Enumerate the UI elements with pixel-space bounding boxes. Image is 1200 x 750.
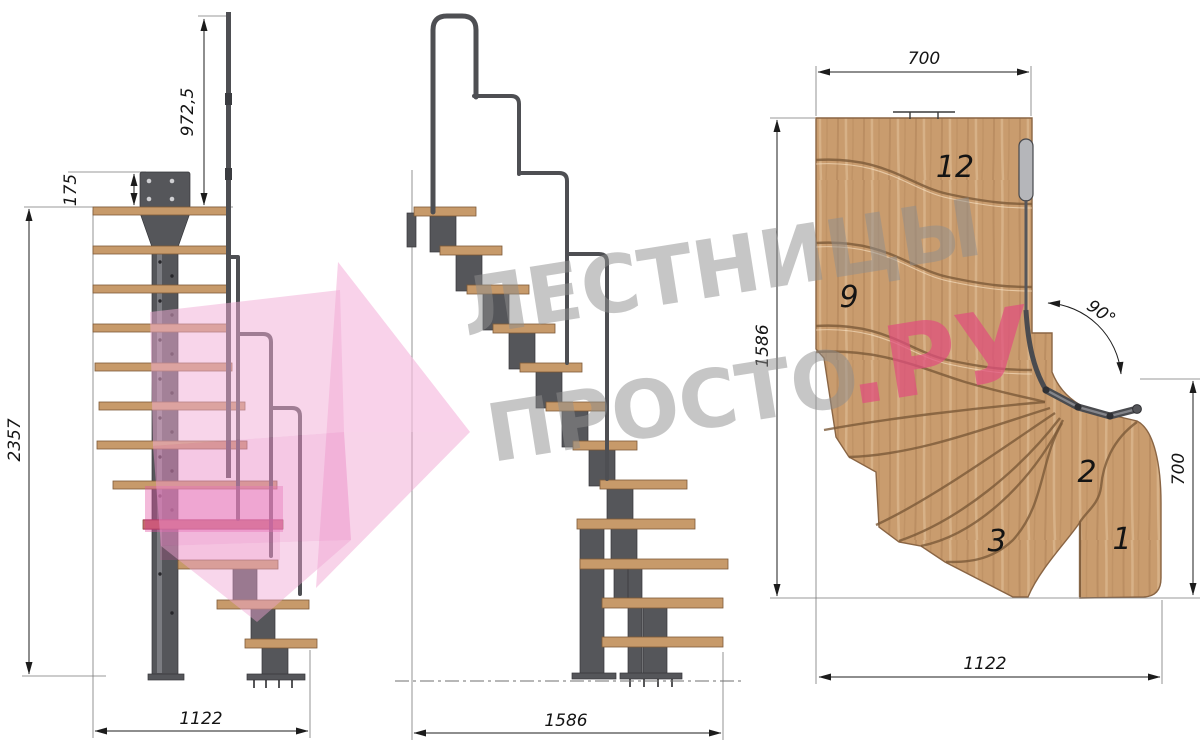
- wall-bracket: [407, 213, 416, 247]
- dim-label: 2357: [5, 418, 25, 461]
- dim-label: 700: [1169, 453, 1189, 485]
- step-tread: [93, 285, 228, 293]
- step-number: 12: [936, 150, 974, 185]
- dim-label: 1122: [963, 654, 1006, 674]
- base-plate: [572, 673, 616, 679]
- step-number: 3: [987, 524, 1006, 559]
- stringer-module: [611, 528, 637, 564]
- step-tread: [440, 246, 502, 255]
- step-number: 1: [1112, 522, 1131, 557]
- base-plate: [148, 674, 184, 680]
- arrow-tail-facet: [153, 432, 351, 546]
- dim-label: 700: [908, 49, 940, 69]
- rail-joint: [1042, 386, 1049, 393]
- step-tread: [414, 207, 476, 216]
- step-number: 2: [1077, 455, 1096, 490]
- step-tread: [577, 519, 695, 529]
- rail-joint: [1106, 412, 1113, 419]
- rail-end-cap: [1133, 405, 1142, 414]
- post-sleeve: [225, 168, 232, 180]
- dim-label: 1586: [544, 711, 587, 731]
- support-post: [628, 566, 642, 676]
- step-tread: [520, 363, 582, 372]
- wall-mount-plate: [140, 172, 190, 208]
- dim-label: 175: [61, 174, 81, 206]
- step-tread: [602, 637, 723, 647]
- support-column: [580, 528, 604, 675]
- step-tread: [93, 207, 228, 215]
- support-column: [262, 648, 288, 675]
- step-tread: [580, 559, 728, 569]
- handrail-loop-top: [1019, 139, 1033, 201]
- base-plate: [247, 674, 305, 680]
- step-tread: [93, 246, 228, 254]
- step-tread: [602, 598, 723, 608]
- rail-joint: [1074, 403, 1081, 410]
- base-plate: [620, 673, 682, 679]
- arrow-tail: [150, 290, 344, 446]
- post-sleeve: [225, 93, 232, 105]
- dim-label: 972,5: [178, 88, 198, 137]
- step-tread: [245, 639, 317, 648]
- step-tread: [600, 480, 687, 489]
- dim-label: 1122: [179, 709, 222, 729]
- staircase-technical-drawing: 972,5 175 2357 1122: [0, 0, 1200, 750]
